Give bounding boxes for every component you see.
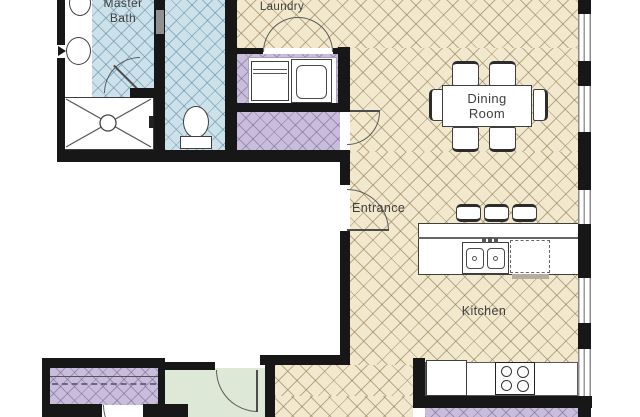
stove: [495, 362, 535, 395]
master-bath-label: Master Bath: [88, 0, 158, 26]
window-5: [578, 349, 591, 396]
dining-room-label-line1: Dining: [443, 91, 531, 106]
dining-chair-bottom-left: [452, 127, 479, 152]
washer-lid-line-2: [253, 73, 287, 74]
wall-bath-left-lower: [57, 58, 65, 152]
window-3: [578, 190, 591, 224]
window-1: [578, 14, 591, 61]
hall-closet-door-leaf: [345, 110, 380, 112]
wall-wc-right: [225, 0, 237, 152]
washer-lid-line-1: [253, 69, 287, 70]
bottom-closet-door-arc: [103, 405, 143, 417]
wall-greatroom-left-lower: [340, 231, 350, 365]
window-2: [578, 86, 591, 132]
closet-shelf-line: [50, 376, 158, 377]
island-bar-edge: [418, 237, 578, 239]
wall-right-seg-4: [578, 224, 591, 278]
sink-faucet-handle: [494, 238, 498, 243]
bar-stool-1: [456, 204, 481, 222]
sink-drain-left: [472, 256, 477, 261]
entrance-label: Entrance: [352, 201, 426, 215]
wall-bath-bottom: [57, 150, 350, 162]
wall-right-seg-5: [578, 323, 591, 349]
wall-kitchen-bottom: [413, 396, 592, 408]
dining-chair-top-right: [489, 61, 516, 86]
wall-bath-door-stub: [130, 88, 156, 98]
stove-burner-4: [517, 380, 529, 392]
shower: [64, 97, 154, 150]
stove-burner-1: [501, 366, 512, 377]
dining-chair-bottom-right: [489, 127, 516, 152]
toilet-bowl: [183, 106, 209, 138]
shower-glyph: [65, 98, 152, 148]
master-bath-label-line2: Bath: [88, 11, 158, 26]
wall-hallway-top: [158, 362, 215, 370]
sink-faucet-spout: [488, 237, 492, 242]
master-bath-label-line1: Master: [88, 0, 158, 11]
washer: [251, 61, 289, 101]
dining-chair-top-left: [452, 61, 479, 86]
wall-right-seg-2: [578, 61, 591, 86]
wall-hallway-right: [265, 362, 275, 417]
wall-right-seg-3: [578, 132, 591, 190]
dining-armchair-right: [533, 89, 548, 121]
dryer-drum: [296, 65, 327, 99]
bar-stool-3: [512, 204, 537, 222]
window-4: [578, 278, 591, 323]
dining-room-label-line2: Room: [443, 106, 531, 121]
wall-closet-bottom-right: [143, 404, 188, 417]
dining-table: Dining Room: [442, 85, 532, 127]
sink-drain-right: [493, 256, 498, 261]
wall-right-seg-1: [578, 0, 591, 14]
wall-bath-left-upper: [57, 0, 65, 45]
entrance-door-leaf: [347, 229, 389, 231]
wall-bifold-jamb-left: [237, 48, 263, 54]
sink-faucet: [482, 238, 486, 243]
wall-laundry-bottom: [237, 103, 340, 112]
toilet-tank: [180, 136, 212, 149]
dishwasher: [510, 240, 550, 273]
wall-bifold-jamb-right: [333, 48, 350, 54]
wall-marker-wedge: [58, 46, 66, 56]
wall-closet-bottom-left: [42, 404, 102, 417]
kitchen-walkway-floor: [275, 396, 413, 417]
wall-right-seg-6: [578, 396, 591, 417]
bar-stool-2: [484, 204, 509, 222]
stove-burner-2: [517, 366, 529, 378]
hallway-door-leaf: [256, 370, 258, 412]
bottom-closet-floor: [50, 368, 158, 405]
laundry-label: Laundry: [245, 1, 319, 13]
refrigerator: [426, 360, 467, 396]
bottom-room-floor: [425, 408, 578, 417]
stove-burner-3: [501, 380, 512, 391]
kitchen-label: Kitchen: [448, 304, 520, 318]
vanity-sink-2: [66, 37, 91, 65]
wall-greatroom-left-upper: [340, 152, 350, 185]
dishwasher-shadow: [512, 274, 549, 279]
wall-closet-top: [42, 358, 165, 368]
closet-rod: [52, 383, 156, 385]
hall-closet-floor: [237, 112, 340, 152]
floor-plan: Dining Room: [0, 0, 640, 417]
